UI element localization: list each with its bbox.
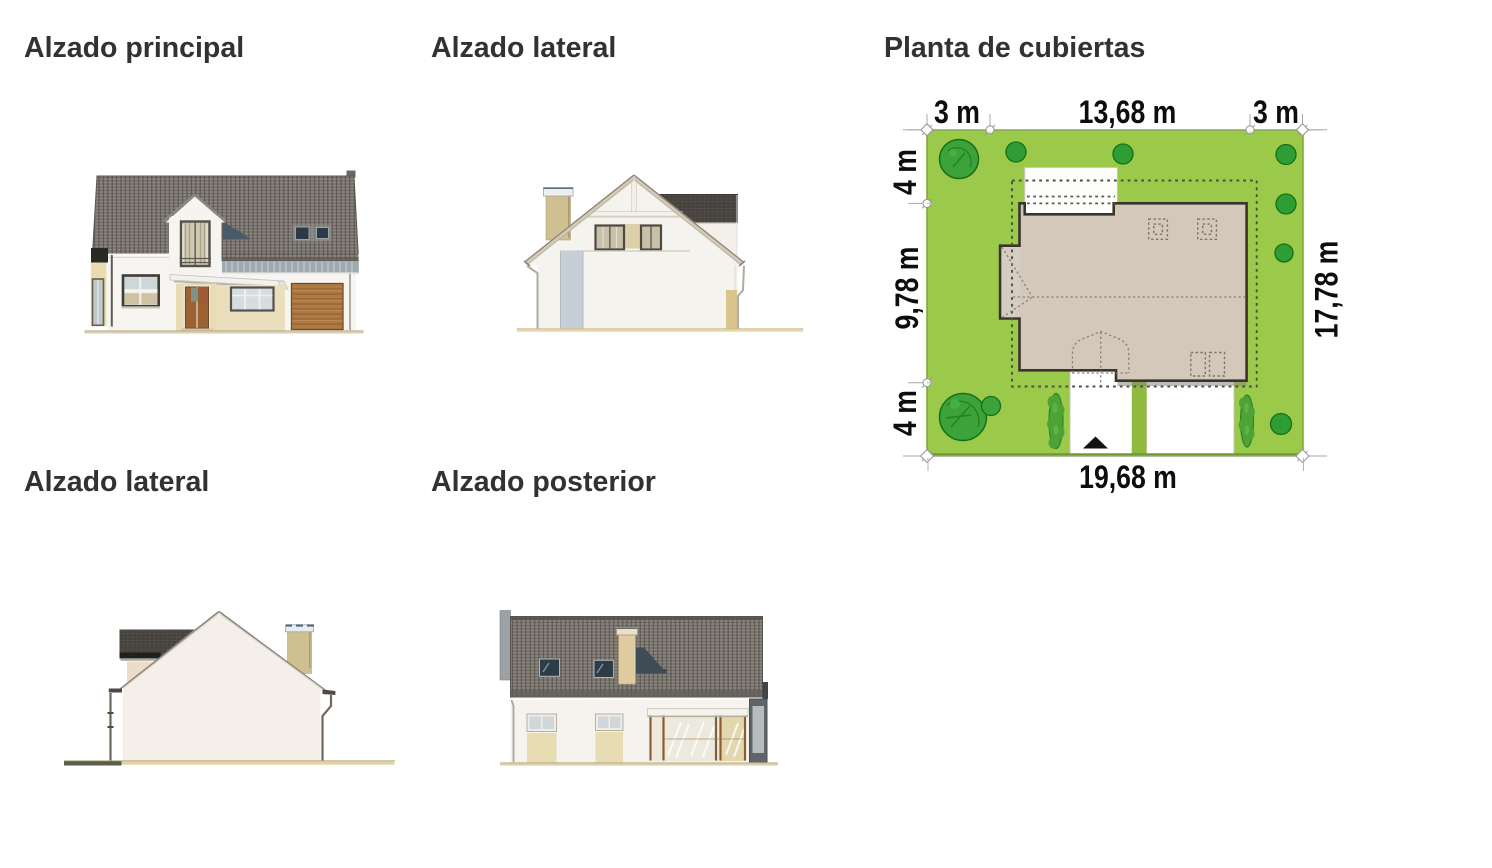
svg-text:3 m: 3 m (1253, 95, 1299, 131)
svg-text:19,68 m: 19,68 m (1079, 460, 1177, 496)
svg-text:13,68 m: 13,68 m (1079, 95, 1177, 131)
svg-text:17,78 m: 17,78 m (1309, 241, 1345, 339)
svg-text:4 m: 4 m (888, 149, 924, 195)
svg-text:9,78 m: 9,78 m (890, 247, 926, 330)
svg-text:4 m: 4 m (888, 390, 924, 436)
svg-text:3 m: 3 m (934, 95, 980, 131)
